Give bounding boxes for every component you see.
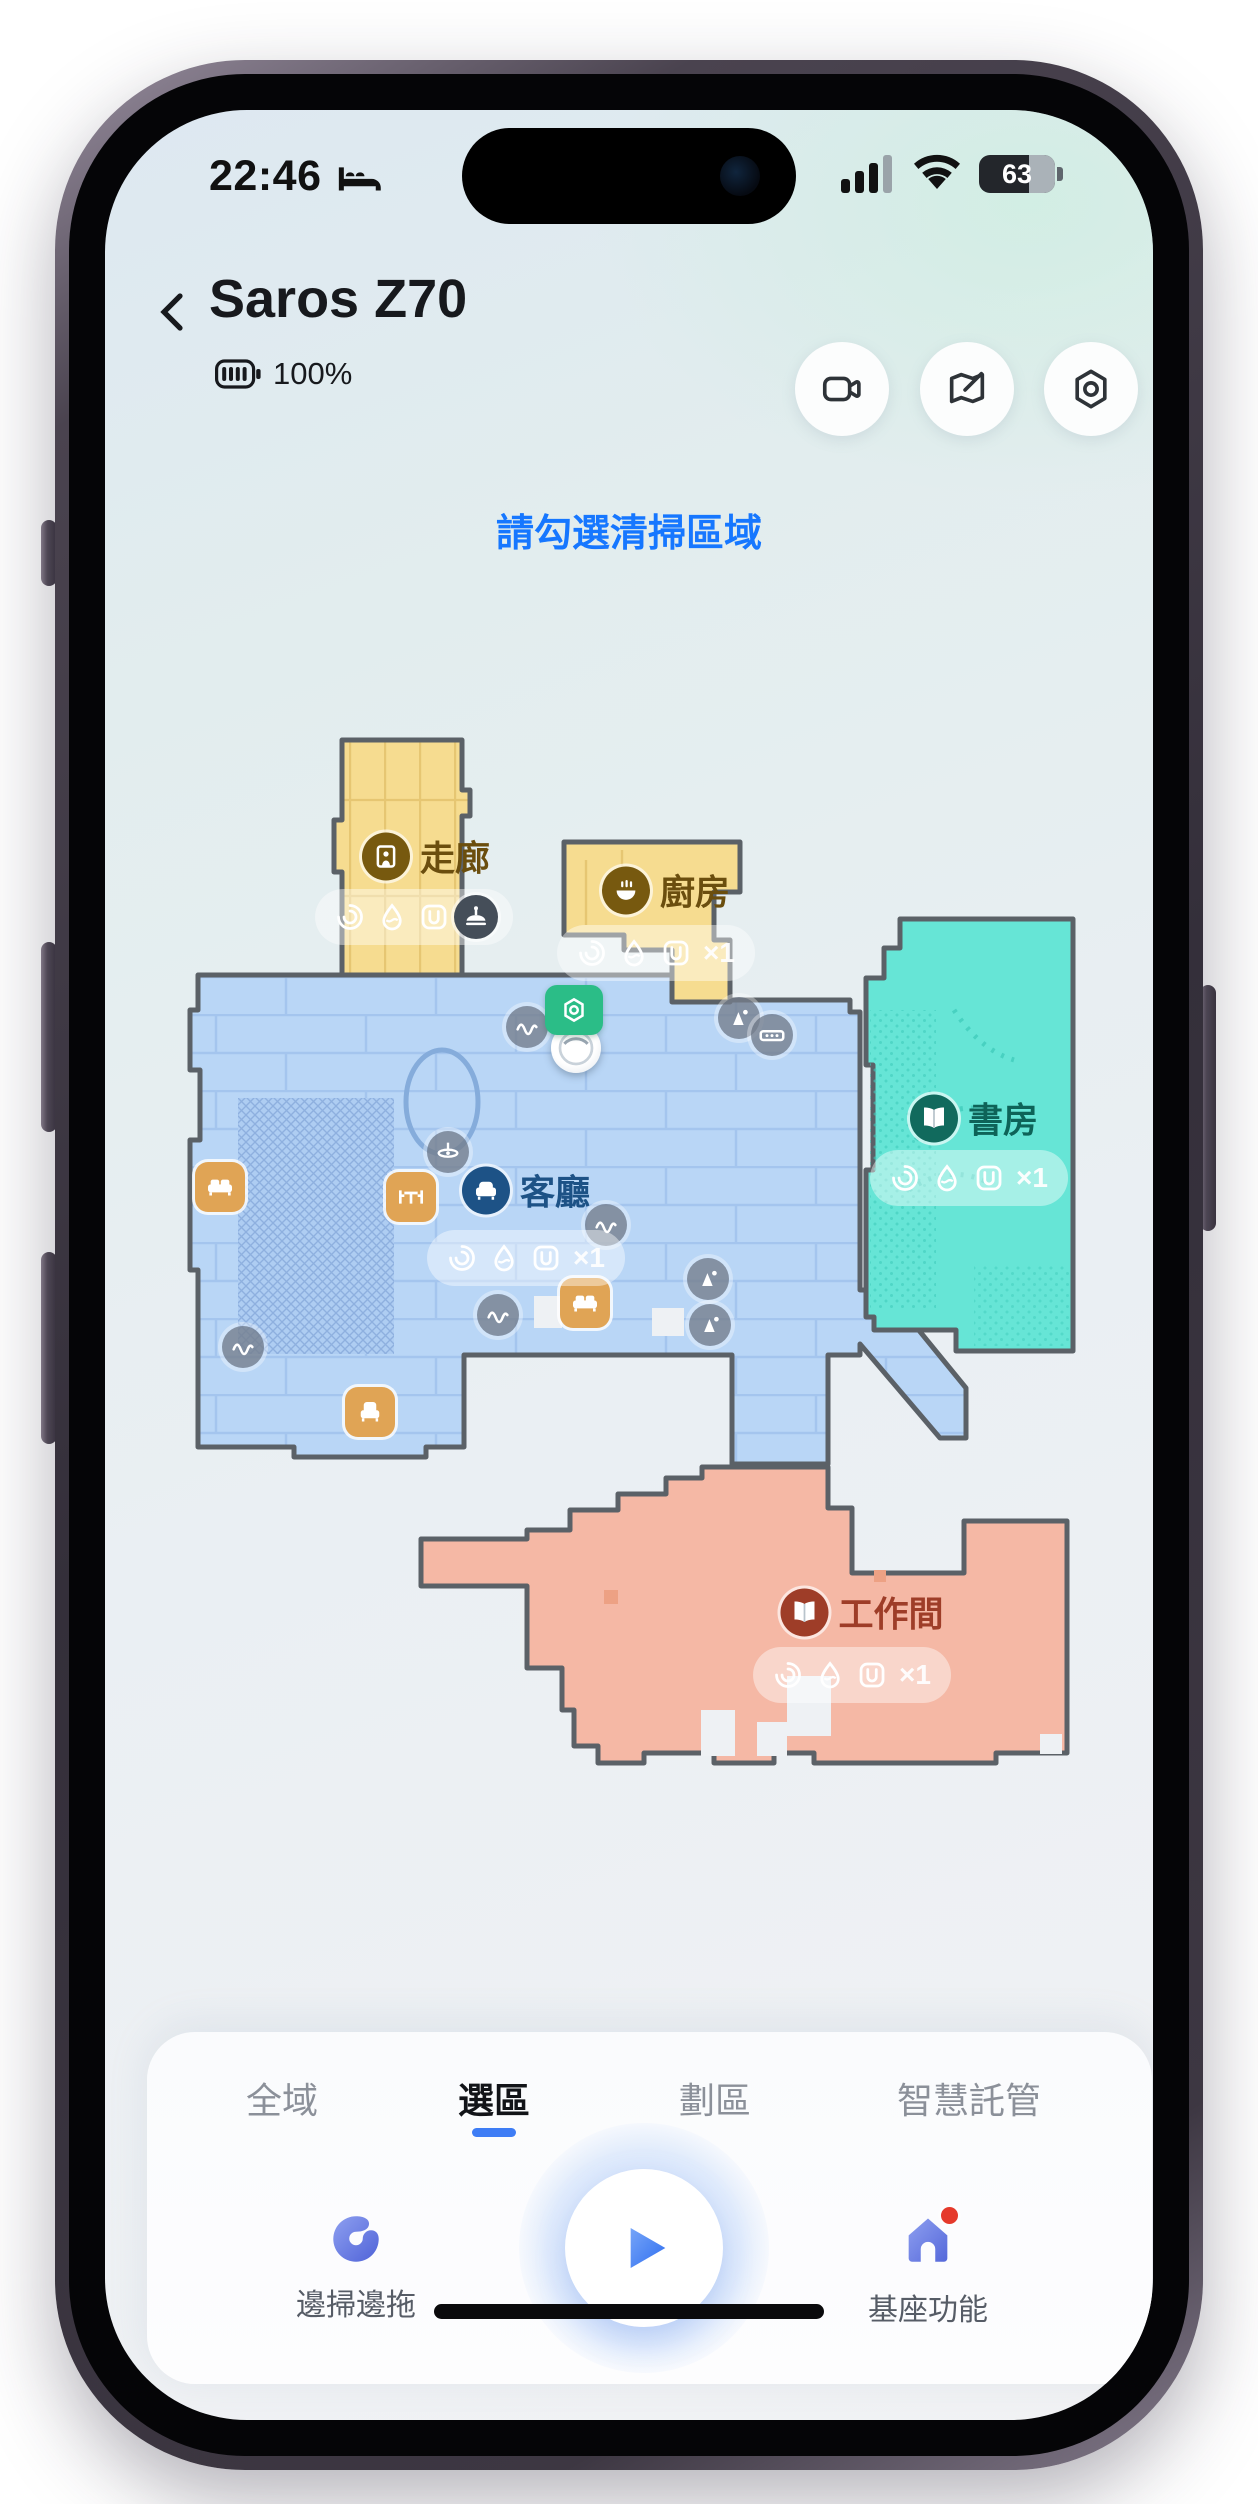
water-icon xyxy=(932,1163,962,1193)
map-edit-button[interactable] xyxy=(920,342,1014,436)
clean-count: ×1 xyxy=(703,937,735,969)
book-room-icon xyxy=(910,1094,958,1142)
bedtime-icon xyxy=(335,157,385,197)
room-label-corridor[interactable]: 走廊 xyxy=(362,831,490,882)
dock-functions-label: 基座功能 xyxy=(868,2285,988,2329)
back-button[interactable] xyxy=(149,288,197,336)
tab-whole-house[interactable]: 全域 xyxy=(246,2072,318,2124)
sofa-room-icon xyxy=(462,1166,510,1214)
clean-count: ×1 xyxy=(573,1242,605,1274)
home-indicator[interactable] xyxy=(434,2304,824,2319)
room-name: 書房 xyxy=(968,1093,1038,1144)
vac-mop-label: 邊掃邊拖 xyxy=(296,2280,416,2324)
suction-icon xyxy=(447,1243,477,1273)
phone-frame: 22:46 xyxy=(55,60,1203,2470)
battery-indicator: 63 xyxy=(979,155,1063,193)
settings-button[interactable] xyxy=(1044,342,1138,436)
select-area-prompt: 請勾選清掃區域 xyxy=(105,502,1153,557)
clean-count: ×1 xyxy=(899,1659,931,1691)
phone-bezel: 22:46 xyxy=(69,74,1189,2456)
dock-icon[interactable] xyxy=(545,985,603,1035)
bottom-sheet: 全域 選區 劃區 智慧託管 xyxy=(147,2032,1152,2384)
water-icon xyxy=(489,1243,519,1273)
bowl-room-icon xyxy=(602,866,650,914)
route-icon xyxy=(531,1243,561,1273)
water-icon xyxy=(619,938,649,968)
gear-icon xyxy=(1068,366,1114,412)
suction-icon xyxy=(335,902,365,932)
clean-settings-pill-workroom[interactable]: ×1 xyxy=(753,1647,951,1703)
app-screen: 22:46 xyxy=(105,110,1153,2420)
door-room-icon xyxy=(362,832,410,880)
clean-settings-pill-living[interactable]: ×1 xyxy=(427,1230,625,1286)
water-icon xyxy=(377,902,407,932)
robot-battery-icon xyxy=(215,359,261,389)
suction-icon xyxy=(773,1660,803,1690)
play-icon xyxy=(612,2216,676,2280)
notification-dot xyxy=(938,2204,961,2227)
page-title: Saros Z70 xyxy=(209,268,467,330)
cellular-signal-icon xyxy=(841,155,895,193)
route-icon xyxy=(661,938,691,968)
dynamic-island xyxy=(462,128,796,224)
clean-count: ×1 xyxy=(1016,1162,1048,1194)
vac-mop-mode-button[interactable]: 邊掃邊拖 xyxy=(296,2210,416,2324)
tab-select-area[interactable]: 選區 xyxy=(458,2072,530,2124)
room-name: 廚房 xyxy=(660,865,730,916)
room-name: 工作間 xyxy=(838,1587,943,1638)
clock: 22:46 xyxy=(209,152,321,201)
robot-obstacle-icon xyxy=(454,895,498,939)
route-icon xyxy=(974,1163,1004,1193)
front-camera xyxy=(720,156,760,196)
wifi-icon xyxy=(911,154,963,194)
route-icon xyxy=(857,1660,887,1690)
tab-zone[interactable]: 劃區 xyxy=(679,2072,751,2124)
water-icon xyxy=(815,1660,845,1690)
robot-battery: 100% xyxy=(215,356,352,392)
floor-map: 走廊×1廚房×1客廳×1書房×1工作間×1 xyxy=(174,710,1104,1815)
suction-icon xyxy=(577,938,607,968)
suction-icon xyxy=(890,1163,920,1193)
tab-smart-plan[interactable]: 智慧託管 xyxy=(897,2072,1041,2124)
dock-functions-button[interactable]: 基座功能 xyxy=(868,2210,988,2329)
battery-percent: 63 xyxy=(979,159,1055,190)
active-tab-underline xyxy=(472,2128,516,2137)
clean-settings-pill-kitchen[interactable]: ×1 xyxy=(557,925,755,981)
book-room-icon xyxy=(780,1588,828,1636)
vac-mop-swirl-icon xyxy=(327,2210,385,2268)
room-name: 客廳 xyxy=(520,1165,590,1216)
room-label-workroom[interactable]: 工作間 xyxy=(780,1587,943,1638)
room-name: 走廊 xyxy=(420,831,490,882)
room-label-study[interactable]: 書房 xyxy=(910,1093,1038,1144)
robot-battery-value: 100% xyxy=(273,356,352,392)
room-label-kitchen[interactable]: 廚房 xyxy=(602,865,730,916)
video-camera-icon xyxy=(819,366,865,412)
route-icon xyxy=(419,902,449,932)
map-edit-icon xyxy=(944,366,990,412)
room-label-living[interactable]: 客廳 xyxy=(462,1165,590,1216)
clean-settings-pill-study[interactable]: ×1 xyxy=(870,1150,1068,1206)
camera-view-button[interactable] xyxy=(795,342,889,436)
